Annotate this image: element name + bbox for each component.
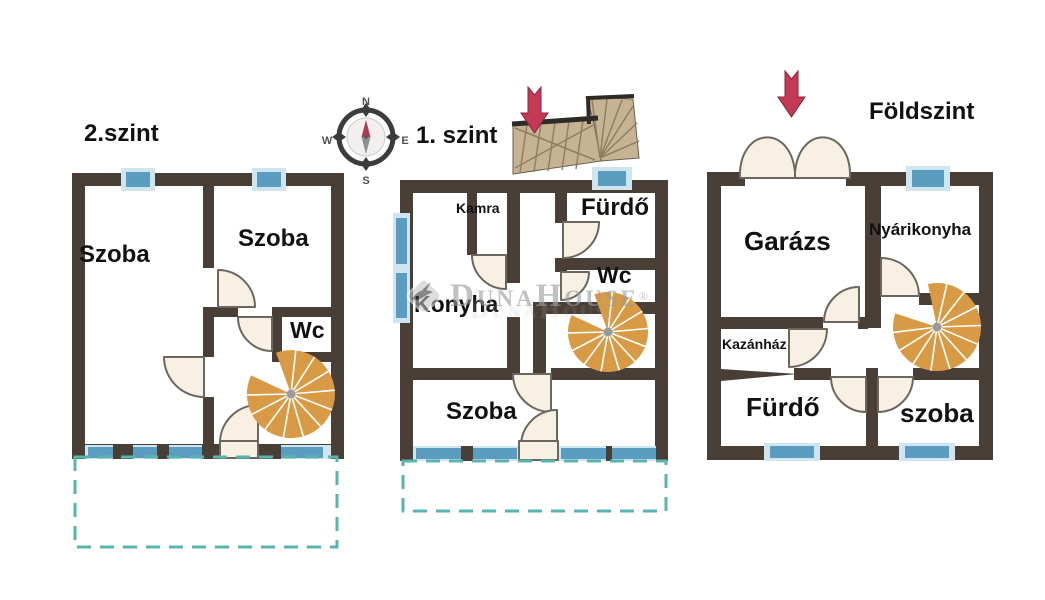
room-label-garazs: Garázs [744,228,831,254]
compass-west-label: W [322,135,333,147]
door [513,374,551,412]
door [824,287,859,322]
compass-north-label: N [362,96,370,108]
terrace-dashed-outline [75,457,666,547]
door [218,270,255,307]
floor-title-first: 1. szint [416,124,497,148]
room-label-szoba-0: szoba [900,400,974,426]
door-leaf [519,441,558,460]
door [831,377,866,412]
door [164,357,204,397]
room-label-nyarikonyha: Nyárikonyha [869,221,971,238]
spiral-staircase-icon [247,350,335,438]
floor-title-second: 2.szint [84,122,159,146]
door [789,329,827,367]
door [561,272,589,300]
room-label-wc-2: Wc [290,319,325,342]
garage-door [795,137,850,178]
door [472,255,506,289]
room-label-szoba-1: Szoba [446,400,517,424]
garage-door [740,137,795,178]
room-label-furdo-0: Fürdő [746,394,820,420]
room-label-szoba-right: Szoba [238,227,309,251]
floor-plan-image: N E S W 2.szint 1. szint Földszint Szoba… [0,0,1045,600]
room-label-wc-1: Wc [597,264,632,287]
door-leaf [220,441,258,458]
room-label-furdo-1: Fürdő [581,196,649,220]
door [881,258,919,296]
compass-east-label: E [401,135,408,147]
door [238,317,272,351]
floor-plan-graphic: N E S W [0,0,1045,600]
entrance-arrow-icon [778,71,805,117]
floor-title-ground: Földszint [869,100,974,124]
room-label-szoba-left: Szoba [79,243,150,267]
compass-south-label: S [362,175,369,187]
room-label-kamra: Kamra [456,201,500,215]
room-label-kazanhaz: Kazánház [722,337,787,351]
room-label-konyha: Konyha [414,293,498,316]
door [563,222,599,258]
